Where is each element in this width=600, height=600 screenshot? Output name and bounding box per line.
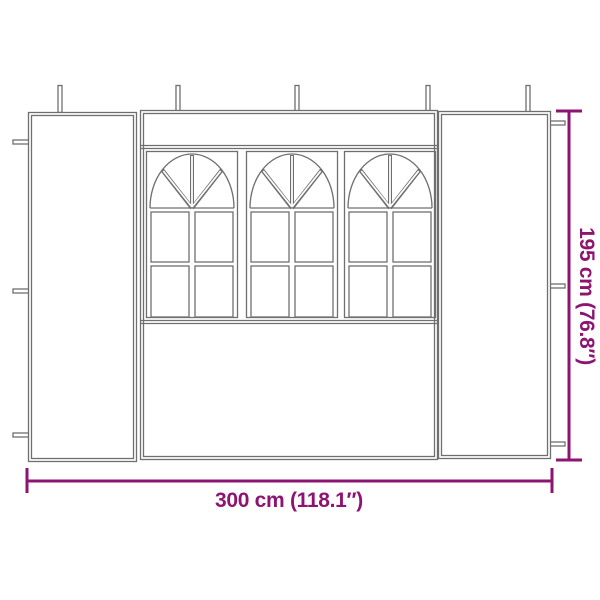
width-dimension-tick-left xyxy=(26,468,29,493)
right-tie-tabs xyxy=(549,121,565,446)
height-dimension-line xyxy=(568,111,571,460)
tent-peg xyxy=(176,86,180,113)
product-diagram: 300 cm (118.1″) 195 cm (76.8″) xyxy=(0,0,600,600)
tent-drawing xyxy=(13,86,565,462)
tie-tab xyxy=(13,140,30,144)
tie-tab xyxy=(549,442,565,446)
width-dimension: 300 cm (118.1″) xyxy=(26,468,554,512)
height-dimension-tick-bottom xyxy=(556,459,582,462)
center-panel xyxy=(141,111,438,460)
tent-peg xyxy=(58,86,62,113)
right-panel-outline xyxy=(439,112,551,459)
diagram-canvas: 300 cm (118.1″) 195 cm (76.8″) xyxy=(0,0,600,600)
tent-peg xyxy=(526,86,530,113)
tent-peg xyxy=(295,86,299,113)
roof-pegs xyxy=(58,86,530,113)
tie-tab xyxy=(549,284,565,288)
width-dimension-label: 300 cm (118.1″) xyxy=(215,489,363,512)
height-dimension-tick-top xyxy=(556,110,582,113)
tie-tab xyxy=(13,289,30,293)
height-dimension-label: 195 cm (76.8″) xyxy=(575,227,598,365)
left-panel xyxy=(29,113,137,462)
left-tie-tabs xyxy=(13,140,30,437)
tie-tab xyxy=(549,121,565,125)
width-dimension-line xyxy=(27,480,552,483)
left-panel-outline xyxy=(29,113,137,462)
tie-tab xyxy=(13,433,30,437)
right-panel xyxy=(439,112,551,459)
tent-peg xyxy=(426,86,430,113)
width-dimension-tick-right xyxy=(551,468,554,493)
